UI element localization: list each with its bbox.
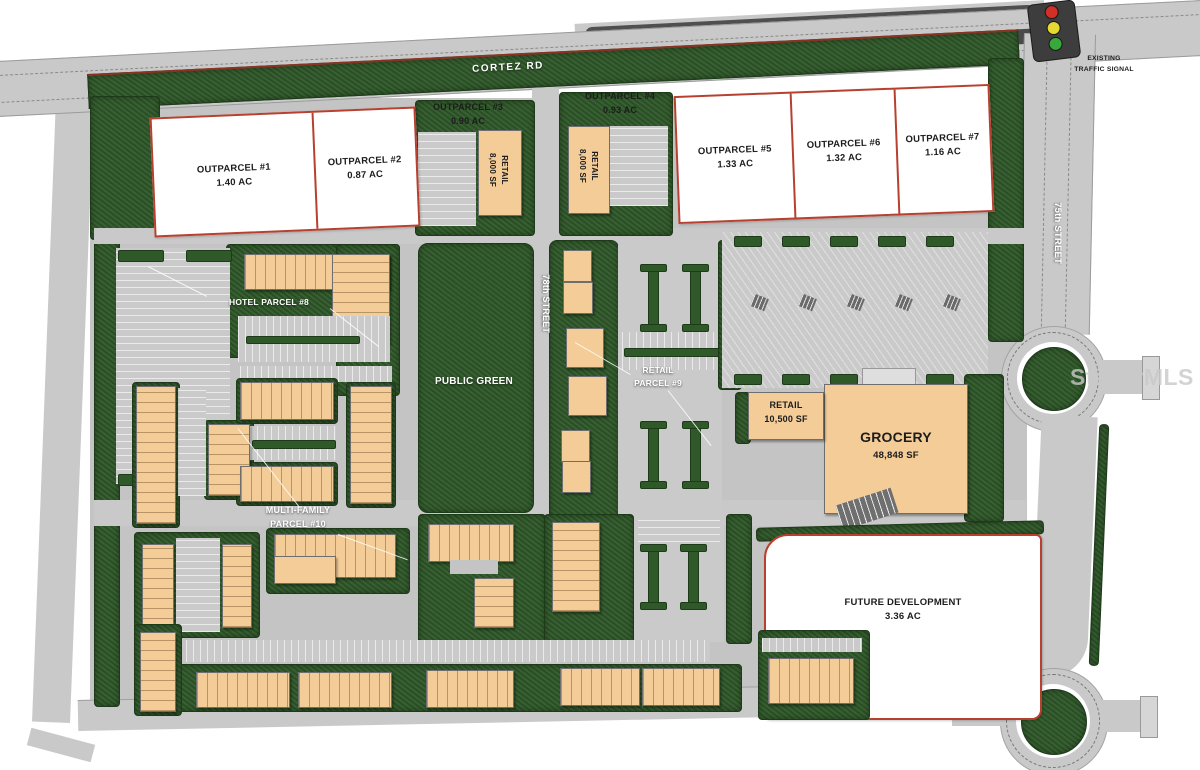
traffic-signal-label: EXISTINGTRAFFIC SIGNAL xyxy=(1062,54,1146,76)
amenity-building xyxy=(428,524,514,562)
grocery-building: GROCERY 48,848 SF xyxy=(824,384,968,514)
grocery-east-landscape xyxy=(964,374,1004,522)
bottom-parking-row xyxy=(186,640,710,662)
townhome-building xyxy=(140,632,176,712)
townhome-building xyxy=(560,668,640,706)
parking-island-bar xyxy=(688,548,699,606)
parking-island-bar xyxy=(648,268,659,328)
retail9-building xyxy=(568,376,607,416)
retail9-building xyxy=(561,430,590,462)
outparcel-1-2: OUTPARCEL #11.40 AC OUTPARCEL #20.87 AC xyxy=(150,106,421,237)
outparcel-7-label: OUTPARCEL #71.16 AC xyxy=(895,130,990,162)
lane-dash-line xyxy=(1041,42,1048,327)
multi-family-label: MULTI-FAMILYPARCEL #10 xyxy=(238,504,358,531)
south-block-landscape xyxy=(726,514,752,644)
landscape-island xyxy=(878,236,906,247)
retail-inline-building: RETAIL10,500 SF xyxy=(748,392,824,440)
landscape-island xyxy=(246,336,360,344)
townhome-building xyxy=(552,522,600,612)
landscape-island xyxy=(624,348,720,357)
parking-island-cap xyxy=(680,602,707,610)
notch-parking-row xyxy=(762,638,862,652)
south-parking-row xyxy=(638,518,720,542)
landscape-island xyxy=(252,440,336,449)
parking-island-cap xyxy=(640,324,667,332)
retail-parcel9-label: RETAILPARCEL #9 xyxy=(612,364,704,390)
outparcel-6-label: OUTPARCEL #61.32 AC xyxy=(791,136,896,168)
landscape-island xyxy=(926,236,954,247)
west-boundary-road xyxy=(32,98,94,723)
signal-green-light xyxy=(1048,36,1064,52)
landscape-island xyxy=(186,250,232,262)
parking-island-cap xyxy=(680,544,707,552)
site-plan: OUTPARCEL #11.40 AC OUTPARCEL #20.87 AC … xyxy=(0,0,1200,770)
townhome-building xyxy=(426,670,514,708)
walk-path xyxy=(450,560,498,574)
hotel-parcel-label: HOTEL PARCEL #8 xyxy=(210,296,328,309)
outparcel-1-label: OUTPARCEL #11.40 AC xyxy=(154,159,315,194)
townhome-building xyxy=(298,672,392,708)
parking-island-cap xyxy=(640,544,667,552)
outparcel-5-label: OUTPARCEL #51.33 AC xyxy=(678,142,793,175)
parking-island-cap xyxy=(682,324,709,332)
landscape-island xyxy=(734,374,762,385)
south-parking xyxy=(176,538,220,632)
outparcel-3-parking xyxy=(418,132,476,226)
grocery-size-label: 48,848 SF xyxy=(825,449,967,463)
parking-island-cap xyxy=(640,602,667,610)
roundabout-south-east-stub xyxy=(1102,700,1142,732)
75th-street-label: 75th STREET xyxy=(1050,188,1064,278)
stellar-mls-watermark: StellarMLS xyxy=(1070,364,1194,391)
multifamily-building xyxy=(136,386,176,524)
lane-dash-line xyxy=(1065,42,1072,327)
multifamily-building xyxy=(240,382,334,420)
landscape-island xyxy=(782,374,810,385)
amenity-building xyxy=(474,578,514,628)
multifamily-building xyxy=(240,466,334,502)
multifamily-parking xyxy=(178,388,206,496)
outparcel-3-label: OUTPARCEL #30.90 AC xyxy=(408,101,528,128)
parking-island-bar xyxy=(648,548,659,606)
townhome-building xyxy=(768,658,854,704)
townhome-building xyxy=(142,544,174,630)
bottom-road-tail xyxy=(27,728,95,762)
outparcel-4-label: OUTPARCEL #40.93 AC xyxy=(562,90,678,117)
future-development-label: FUTURE DEVELOPMENT3.36 AC xyxy=(766,596,1040,625)
townhome-building xyxy=(222,544,252,628)
retail9-building xyxy=(563,282,593,314)
75th-street-road xyxy=(1018,33,1096,334)
multifamily-building xyxy=(350,386,392,504)
parking-island-cap xyxy=(640,421,667,429)
parking-island-cap xyxy=(682,264,709,272)
parking-island-cap xyxy=(640,264,667,272)
78th-street-north-leg xyxy=(532,88,559,236)
grocery-label: GROCERY xyxy=(825,427,967,448)
retail9-building xyxy=(562,461,591,493)
retail-west-label: RETAIL8,000 SF xyxy=(486,134,510,206)
outparcel-5-6-7: OUTPARCEL #51.33 AC OUTPARCEL #61.32 AC … xyxy=(674,84,995,224)
landscape-island xyxy=(118,250,164,262)
signal-yellow-light xyxy=(1046,20,1062,36)
road-stub-endcap xyxy=(1140,696,1158,738)
outparcel-2-label: OUTPARCEL #20.87 AC xyxy=(315,153,414,186)
retail-inline-label: RETAIL10,500 SF xyxy=(749,399,823,426)
multifamily-building-wing xyxy=(274,556,336,584)
retail9-building xyxy=(563,250,592,282)
parking-island-cap xyxy=(682,481,709,489)
signal-red-light xyxy=(1044,4,1060,20)
outparcel-4-parking xyxy=(610,126,668,206)
landscape-island xyxy=(782,236,810,247)
landscape-island xyxy=(830,236,858,247)
parking-island-bar xyxy=(648,425,659,485)
parking-island-bar xyxy=(690,268,701,328)
townhome-building xyxy=(196,672,290,708)
78th-street-label: 78th STREET xyxy=(538,262,552,346)
parking-island-cap xyxy=(640,481,667,489)
retail-east-label: RETAIL8,000 SF xyxy=(576,130,600,202)
parking-island-bar xyxy=(690,425,701,485)
landscape-island xyxy=(734,236,762,247)
townhome-building xyxy=(642,668,720,706)
public-green-label: PUBLIC GREEN xyxy=(412,374,536,389)
